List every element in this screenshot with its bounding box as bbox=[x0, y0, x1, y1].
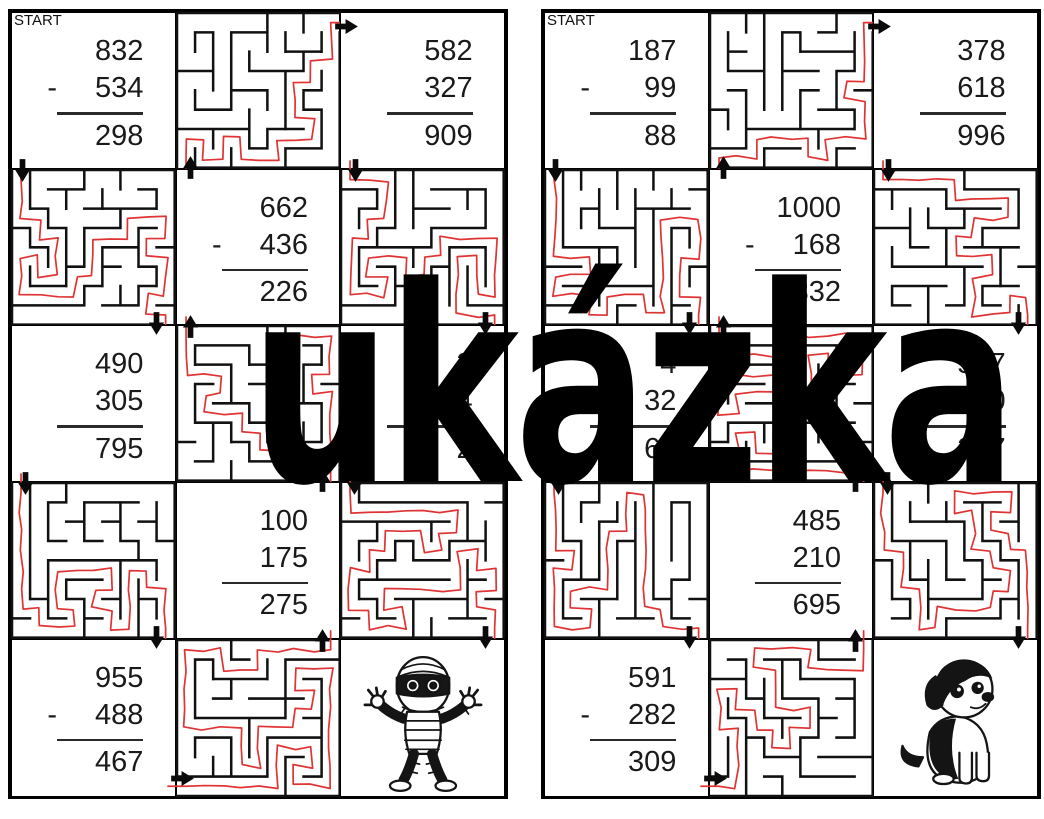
path-arrow-up-icon bbox=[847, 469, 864, 492]
worksheet-page: START 832 -534 298 582 327 909 bbox=[0, 0, 1044, 819]
path-arrow-down-icon bbox=[14, 159, 31, 182]
path-arrow-down-icon bbox=[681, 312, 698, 335]
maze-cell bbox=[709, 12, 874, 169]
math-cell: 662 -436 226 bbox=[176, 169, 341, 326]
answer-line bbox=[920, 112, 1006, 115]
maze bbox=[545, 170, 708, 325]
path-arrow-up-icon bbox=[314, 469, 331, 492]
maze bbox=[710, 640, 873, 796]
math-cell: 517 -300 217 bbox=[873, 325, 1038, 482]
math-cell: 485 210 695 bbox=[709, 482, 874, 639]
path-arrow-down-icon bbox=[148, 312, 165, 335]
path-arrow-down-icon bbox=[477, 312, 494, 335]
math-cell-obscured: 4 32 66 bbox=[544, 325, 709, 482]
path-arrow-down-icon bbox=[1010, 626, 1027, 649]
operand-1: 832 bbox=[95, 33, 143, 70]
operand-2: 282 bbox=[628, 697, 676, 734]
operand-1: 378 bbox=[957, 33, 1005, 70]
finish-cell bbox=[340, 639, 505, 797]
path-arrow-down-icon bbox=[880, 159, 897, 182]
math-cell-start: START 187 -99 88 bbox=[544, 12, 709, 169]
operand-2: 168 bbox=[793, 227, 841, 264]
operand-1: 100 bbox=[260, 503, 308, 540]
answer: 298 bbox=[95, 118, 143, 155]
operand-2: 4 bbox=[457, 383, 473, 420]
answer: 217 bbox=[957, 431, 1005, 468]
path-arrow-down-icon bbox=[550, 472, 567, 495]
math-problem: 832 -534 298 bbox=[43, 33, 143, 155]
maze-cell bbox=[873, 169, 1038, 326]
operand-2: 300 bbox=[957, 383, 1005, 420]
maze bbox=[341, 483, 504, 638]
answer: 695 bbox=[793, 587, 841, 624]
maze-cell bbox=[176, 639, 341, 797]
math-problem: 3 4 2 bbox=[373, 346, 473, 468]
math-cell: 100 175 275 bbox=[176, 482, 341, 639]
answer-line bbox=[755, 269, 841, 272]
operator: - bbox=[745, 227, 755, 264]
math-cell: 490 305 795 bbox=[11, 325, 176, 482]
maze-cell bbox=[176, 325, 341, 482]
maze bbox=[874, 483, 1037, 638]
path-arrow-down-icon bbox=[1010, 312, 1027, 335]
math-problem: 591 -282 309 bbox=[576, 660, 676, 782]
operand-2: 175 bbox=[260, 540, 308, 577]
path-arrow-down-icon bbox=[347, 159, 364, 182]
operand-2: 305 bbox=[95, 383, 143, 420]
operand-2: 534 bbox=[95, 70, 143, 107]
math-problem: 100 175 275 bbox=[208, 503, 308, 625]
math-problem: 955 -488 467 bbox=[43, 660, 143, 782]
operand-2: 327 bbox=[424, 70, 472, 107]
path-arrow-down-icon bbox=[346, 472, 363, 495]
path-arrow-down-icon bbox=[17, 472, 34, 495]
math-problem: 187 -99 88 bbox=[576, 33, 676, 155]
path-arrow-right-icon bbox=[868, 18, 891, 35]
maze bbox=[12, 483, 175, 638]
math-cell: 955 -488 467 bbox=[11, 639, 176, 797]
math-problem: 4 32 66 bbox=[576, 346, 676, 468]
puzzle-panel-right: START 187 -99 88 378 618 996 bbox=[541, 9, 1041, 799]
operand-1: 582 bbox=[424, 33, 472, 70]
answer-line bbox=[590, 425, 676, 428]
path-arrow-down-icon bbox=[148, 626, 165, 649]
operator: - bbox=[910, 383, 920, 420]
maze bbox=[874, 170, 1037, 325]
maze-cell bbox=[709, 325, 874, 482]
maze bbox=[177, 326, 340, 481]
path-arrow-right-icon bbox=[704, 770, 727, 787]
path-arrow-right-icon bbox=[335, 18, 358, 35]
math-cell: 378 618 996 bbox=[873, 12, 1038, 169]
maze-cell bbox=[873, 482, 1038, 639]
answer-line bbox=[222, 269, 308, 272]
math-problem: 378 618 996 bbox=[906, 33, 1006, 155]
path-arrow-right-icon bbox=[171, 770, 194, 787]
start-label: START bbox=[547, 12, 595, 29]
answer: 996 bbox=[957, 118, 1005, 155]
answer: 909 bbox=[424, 118, 472, 155]
math-cell: 591 -282 309 bbox=[544, 639, 709, 797]
operand-1: 4 bbox=[660, 346, 676, 383]
operand-2: 32 bbox=[644, 383, 676, 420]
answer-line bbox=[222, 582, 308, 585]
math-cell: 582 327 909 bbox=[340, 12, 505, 169]
math-problem: 517 -300 217 bbox=[906, 346, 1006, 468]
maze-cell bbox=[544, 482, 709, 639]
answer: 88 bbox=[644, 118, 676, 155]
answer: 275 bbox=[260, 587, 308, 624]
maze-cell bbox=[176, 12, 341, 169]
answer-line bbox=[57, 739, 143, 742]
maze-cell bbox=[340, 169, 505, 326]
operator: - bbox=[47, 697, 57, 734]
operator: - bbox=[47, 70, 57, 107]
operator: - bbox=[580, 697, 590, 734]
math-problem: 1000 -168 832 bbox=[741, 190, 841, 312]
operand-1: 517 bbox=[957, 346, 1005, 383]
math-problem: 485 210 695 bbox=[741, 503, 841, 625]
maze bbox=[545, 483, 708, 638]
path-arrow-down-icon bbox=[879, 472, 896, 495]
path-arrow-down-icon bbox=[681, 626, 698, 649]
maze-cell bbox=[709, 639, 874, 797]
math-problem: 490 305 795 bbox=[43, 346, 143, 468]
path-arrow-down-icon bbox=[547, 159, 564, 182]
path-arrow-up-icon bbox=[182, 315, 199, 338]
math-cell-start: START 832 -534 298 bbox=[11, 12, 176, 169]
operand-1: 187 bbox=[628, 33, 676, 70]
maze bbox=[341, 170, 504, 325]
answer: 832 bbox=[793, 274, 841, 311]
puzzle-panel-left: START 832 -534 298 582 327 909 bbox=[8, 9, 508, 799]
answer-line bbox=[57, 112, 143, 115]
maze-cell bbox=[11, 482, 176, 639]
answer: 226 bbox=[260, 274, 308, 311]
path-arrow-up-icon bbox=[314, 629, 331, 652]
answer: 795 bbox=[95, 431, 143, 468]
answer-line bbox=[590, 739, 676, 742]
maze-cell bbox=[340, 482, 505, 639]
operand-2: 210 bbox=[793, 540, 841, 577]
operand-1: 1000 bbox=[776, 190, 841, 227]
path-arrow-up-icon bbox=[715, 156, 732, 179]
path-arrow-up-icon bbox=[182, 156, 199, 179]
path-arrow-down-icon bbox=[477, 626, 494, 649]
path-arrow-up-icon bbox=[847, 629, 864, 652]
math-cell: 1000 -168 832 bbox=[709, 169, 874, 326]
math-cell-obscured: 3 4 2 bbox=[340, 325, 505, 482]
answer: 467 bbox=[95, 744, 143, 781]
operator: - bbox=[212, 227, 222, 264]
maze bbox=[12, 170, 175, 325]
answer: 66 bbox=[644, 431, 676, 468]
dog-image bbox=[881, 648, 1031, 796]
mummy-image bbox=[348, 648, 498, 796]
maze bbox=[710, 326, 873, 481]
answer-line bbox=[755, 582, 841, 585]
maze-cell bbox=[544, 169, 709, 326]
operand-1: 3 bbox=[457, 346, 473, 383]
maze bbox=[177, 13, 340, 168]
maze bbox=[177, 640, 340, 796]
operand-2: 618 bbox=[957, 70, 1005, 107]
operand-1: 662 bbox=[260, 190, 308, 227]
answer-line bbox=[387, 425, 473, 428]
math-problem: 582 327 909 bbox=[373, 33, 473, 155]
answer-line bbox=[387, 112, 473, 115]
maze bbox=[710, 13, 873, 168]
answer-line bbox=[57, 425, 143, 428]
answer-line bbox=[590, 112, 676, 115]
operand-1: 490 bbox=[95, 346, 143, 383]
operand-2: 488 bbox=[95, 697, 143, 734]
answer-line bbox=[920, 425, 1006, 428]
maze-cell bbox=[11, 169, 176, 326]
math-problem: 662 -436 226 bbox=[208, 190, 308, 312]
answer: 2 bbox=[457, 431, 473, 468]
operator: - bbox=[580, 70, 590, 107]
operand-2: 436 bbox=[260, 227, 308, 264]
answer: 309 bbox=[628, 744, 676, 781]
operand-2: 99 bbox=[644, 70, 676, 107]
finish-cell bbox=[873, 639, 1038, 797]
operand-1: 955 bbox=[95, 660, 143, 697]
operand-1: 591 bbox=[628, 660, 676, 697]
start-label: START bbox=[14, 12, 62, 29]
operand-1: 485 bbox=[793, 503, 841, 540]
path-arrow-up-icon bbox=[715, 315, 732, 338]
